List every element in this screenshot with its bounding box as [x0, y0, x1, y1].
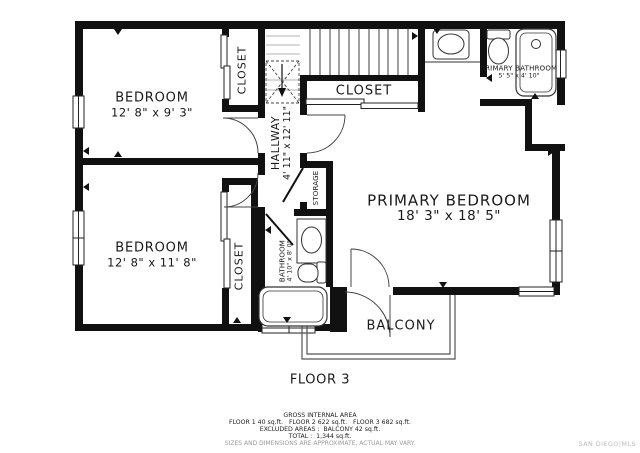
wall-segment	[222, 288, 229, 324]
marker-arrow	[114, 29, 122, 35]
sink-basin	[302, 227, 322, 253]
wall-segment	[75, 265, 83, 331]
door-arc	[307, 115, 345, 153]
area-summary-title: GROSS INTERNAL AREA	[225, 412, 415, 419]
wall-segment	[480, 99, 532, 106]
stair-direction-arrow	[278, 88, 286, 97]
wall-segment	[222, 105, 258, 112]
toilet-bowl	[489, 38, 509, 64]
toilet-bowl	[298, 264, 318, 282]
bathroom-name: BATHROOM	[278, 240, 286, 282]
sliding-door-panel	[221, 192, 227, 241]
room-dims-primary-bedroom: 18' 3" x 18' 5"	[397, 209, 501, 225]
room-label-storage: STORAGE	[312, 171, 320, 206]
room-dims-bedroom-1: 12' 8" x 9' 3"	[111, 106, 193, 119]
room-label-bedroom-1: BEDROOM	[115, 92, 188, 107]
wall-segment	[300, 108, 307, 115]
wall-segment	[75, 21, 83, 98]
area-summary: GROSS INTERNAL AREA FLOOR 1 40 sq.ft. FL…	[225, 412, 415, 448]
room-label-bedroom-2: BEDROOM	[115, 242, 188, 257]
wall-segment	[300, 153, 307, 168]
sliding-door-panel	[224, 66, 230, 99]
wall-segment	[294, 209, 333, 216]
marker-arrow	[265, 226, 271, 234]
area-summary-excluded: EXCLUDED AREAS : BALCONY 42 sq.ft.	[225, 426, 415, 433]
wall-segment	[222, 178, 229, 192]
marker-arrow	[233, 317, 241, 323]
bathtub-inner	[263, 291, 323, 322]
wall-segment	[525, 99, 532, 151]
wall-segment	[258, 153, 265, 175]
sliding-door-panel	[221, 35, 227, 68]
wall-segment	[326, 161, 333, 287]
room-label-primary-bathroom: PRIMARY BATHROOM 5' 5" x 4' 10"	[481, 64, 558, 79]
marker-arrow	[412, 32, 418, 40]
primary-bathroom-name: PRIMARY BATHROOM	[481, 64, 558, 72]
floor-label: FLOOR 3	[290, 374, 350, 389]
wall-segment	[75, 128, 83, 213]
area-summary-total: TOTAL : 1,344 sq.ft.	[225, 433, 415, 440]
wall-segment	[75, 158, 258, 165]
room-label-hallway: HALLWAY 4' 11" x 12' 11"	[270, 106, 294, 180]
bathroom-dims: 4' 10" x 8' 0"	[286, 240, 293, 282]
room-label-balcony: BALCONY	[366, 320, 435, 335]
area-summary-disclaimer: SIZES AND DIMENSIONS ARE APPROXIMATE, AC…	[225, 440, 415, 448]
marker-arrow	[83, 147, 89, 155]
door-arc	[223, 118, 258, 153]
room-label-closet-bedroom-1: CLOSET	[237, 46, 250, 95]
hallway-dims: 4' 11" x 12' 11"	[283, 106, 294, 180]
area-summary-floors: FLOOR 1 40 sq.ft. FLOOR 2 622 sq.ft. FLO…	[225, 419, 415, 426]
sliding-door-panel	[224, 239, 230, 288]
sliding-door-panel	[361, 103, 418, 109]
door-arc	[351, 249, 389, 287]
primary-bathroom-fixtures	[425, 29, 556, 96]
hallway-name: HALLWAY	[270, 106, 283, 180]
mls-watermark: SAN DIEGO|MLS	[578, 440, 636, 448]
wall-segment	[251, 185, 258, 324]
room-label-closet-hall: CLOSET	[336, 85, 393, 100]
bathtub-drain	[532, 40, 541, 49]
room-label-primary-bedroom: PRIMARY BEDROOM	[367, 192, 531, 209]
sliding-door-panel	[306, 99, 364, 105]
wall-segment	[418, 21, 425, 112]
wall-segment	[300, 75, 425, 81]
sink-basin	[438, 34, 464, 54]
marker-arrow	[114, 151, 122, 157]
wall-segment	[75, 324, 262, 331]
room-label-bathroom: BATHROOM 4' 10" x 8' 0"	[278, 240, 293, 282]
wall-segment	[330, 287, 347, 332]
room-label-closet-bedroom-2: CLOSET	[234, 242, 247, 291]
wall-segment	[393, 287, 522, 295]
floor-plan-page: BEDROOM 12' 8" x 9' 3" BEDROOM 12' 8" x …	[0, 0, 640, 453]
wall-segment	[258, 21, 265, 118]
wall-segment	[300, 202, 307, 216]
marker-arrow	[83, 183, 89, 191]
wall-segment	[75, 21, 565, 29]
room-dims-bedroom-2: 12' 8" x 11' 8"	[107, 256, 197, 269]
primary-bathroom-dims: 5' 5" x 4' 10"	[481, 72, 558, 79]
